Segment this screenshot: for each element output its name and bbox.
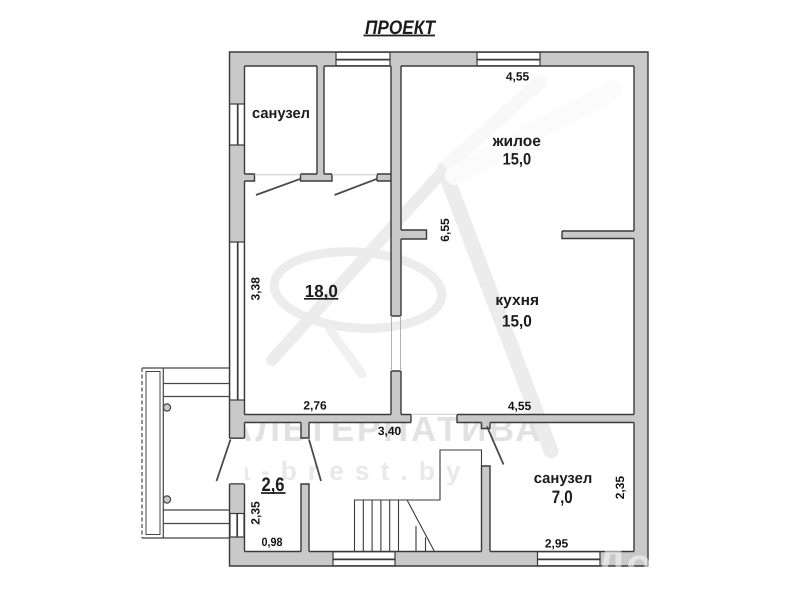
svg-text:кухня: кухня: [495, 292, 539, 309]
svg-text:санузел: санузел: [252, 105, 310, 122]
svg-text:жилое: жилое: [492, 133, 542, 150]
svg-text:2,35: 2,35: [613, 476, 627, 500]
svg-text:3,38: 3,38: [248, 277, 262, 301]
svg-text:7,0: 7,0: [552, 487, 573, 507]
svg-text:3,40: 3,40: [378, 424, 402, 438]
svg-text:До: До: [596, 540, 652, 587]
svg-text:2,35: 2,35: [249, 501, 263, 525]
svg-text:15,0: 15,0: [502, 313, 532, 331]
svg-text:0,98: 0,98: [262, 535, 283, 549]
svg-text:2,76: 2,76: [303, 399, 327, 413]
svg-text:2,95: 2,95: [545, 537, 569, 551]
svg-text:6,55: 6,55: [438, 218, 452, 242]
svg-text:4,55: 4,55: [508, 399, 532, 413]
svg-text:15,0: 15,0: [503, 151, 532, 169]
svg-text:4,55: 4,55: [506, 70, 530, 84]
svg-text:санузел: санузел: [534, 470, 593, 487]
